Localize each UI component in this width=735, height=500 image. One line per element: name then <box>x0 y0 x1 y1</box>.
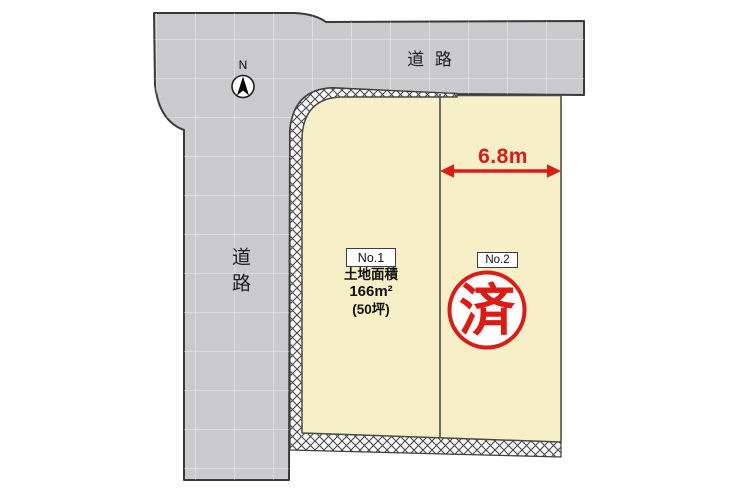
north-compass <box>232 76 254 98</box>
plot2-number-badge: No.2 <box>477 252 518 268</box>
plot1-area-sqm: 166m² <box>344 283 398 301</box>
site-plan: 道 路 道路 N No.1 土地面積 166m² (50坪) No.2 済 6.… <box>0 0 735 500</box>
plot1-number-label: No.1 <box>358 251 384 265</box>
plot1-number-badge: No.1 <box>346 248 396 267</box>
plot1-area-info: 土地面積 166m² (50坪) <box>344 267 398 318</box>
road-label-left: 道路 <box>226 247 253 299</box>
dimension-width-label: 6.8m <box>478 145 528 169</box>
plot1-area-tsubo: (50坪) <box>344 302 398 318</box>
road-label-top: 道 路 <box>407 45 455 70</box>
plot1-area-title: 土地面積 <box>344 267 398 283</box>
plot2-number-label: No.2 <box>485 254 509 266</box>
compass-north-label: N <box>239 58 248 72</box>
sold-stamp-character: 済 <box>459 283 515 339</box>
